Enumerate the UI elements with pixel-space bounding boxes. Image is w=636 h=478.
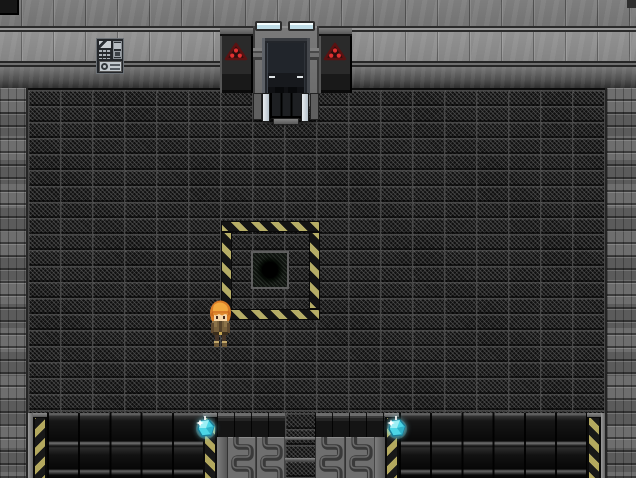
edge-strip-right xyxy=(601,413,605,478)
warning-triangle-icon xyxy=(224,42,248,62)
crystal-left[interactable] xyxy=(194,416,218,440)
floor-hole[interactable] xyxy=(251,251,289,289)
crystal-gem-icon xyxy=(385,416,409,440)
ceiling-light-icon xyxy=(288,21,315,31)
pit-right xyxy=(399,413,587,478)
player-sprite-icon xyxy=(207,299,234,348)
hazard-column-cap xyxy=(33,413,47,418)
ramp-light-strip xyxy=(301,93,309,122)
pit-left xyxy=(47,413,203,478)
door-handle-mark xyxy=(297,76,303,78)
hazard-square-left xyxy=(221,232,232,309)
game-screen xyxy=(0,0,636,478)
stone-wall-right xyxy=(605,88,636,478)
wall-corner-shadow-left xyxy=(0,0,19,15)
poster-screen-icon xyxy=(99,41,111,48)
ramp-light-strip xyxy=(262,93,270,122)
player-character[interactable] xyxy=(207,299,234,348)
machine-edge-strip xyxy=(217,437,227,478)
panel-cap xyxy=(220,28,253,36)
hazard-square-top xyxy=(221,221,320,232)
machine-top-panels xyxy=(217,413,285,437)
radiator-coil-panel xyxy=(256,437,285,478)
coil-tube-icon xyxy=(228,437,256,478)
poster-card-circle-icon xyxy=(101,63,108,70)
door-handle-mark xyxy=(269,76,275,78)
radiator-coil-panel xyxy=(315,437,345,478)
machine-edge-strip xyxy=(375,437,385,478)
hazard-square-right xyxy=(309,232,320,309)
coil-tube-icon xyxy=(257,437,285,478)
warning-panel-right xyxy=(319,28,352,93)
panel-cap xyxy=(319,28,352,36)
ceiling-light-icon xyxy=(255,21,282,31)
center-walkway xyxy=(285,413,315,478)
crystal-gem-icon xyxy=(194,416,218,440)
warning-panel-left xyxy=(220,28,253,93)
hazard-stripe-column xyxy=(33,413,47,478)
poster-side-button xyxy=(114,51,121,57)
hazard-square-bottom xyxy=(221,309,320,320)
wall-poster[interactable] xyxy=(96,38,124,74)
walkway-seam xyxy=(285,458,315,461)
crystal-right[interactable] xyxy=(385,416,409,440)
poster-card-line xyxy=(110,64,120,66)
ramp-post-left xyxy=(253,93,262,120)
poster-side-button xyxy=(114,43,121,49)
ramp-step xyxy=(273,118,299,125)
poster-text-lines xyxy=(99,50,111,59)
coil-tube-icon xyxy=(346,437,375,478)
hazard-stripe-column xyxy=(587,413,601,478)
stone-wall-left xyxy=(0,88,28,478)
bottom-machinery-row xyxy=(28,413,605,478)
hazard-column-cap xyxy=(587,413,601,418)
radiator-coil-panel xyxy=(345,437,375,478)
warning-triangle-icon xyxy=(323,42,347,62)
walkway-seam xyxy=(285,437,315,440)
wall-corner-shadow-right xyxy=(627,0,636,8)
coil-tube-icon xyxy=(316,437,345,478)
ramp-treads xyxy=(270,93,301,118)
hole-darkness xyxy=(256,256,284,284)
radiator-coil-panel xyxy=(227,437,256,478)
poster-card-line xyxy=(110,68,120,70)
door-structure xyxy=(218,14,354,126)
door-leaf[interactable] xyxy=(267,43,305,95)
machine-top-panels xyxy=(315,413,385,437)
ramp-post-right xyxy=(310,93,319,120)
